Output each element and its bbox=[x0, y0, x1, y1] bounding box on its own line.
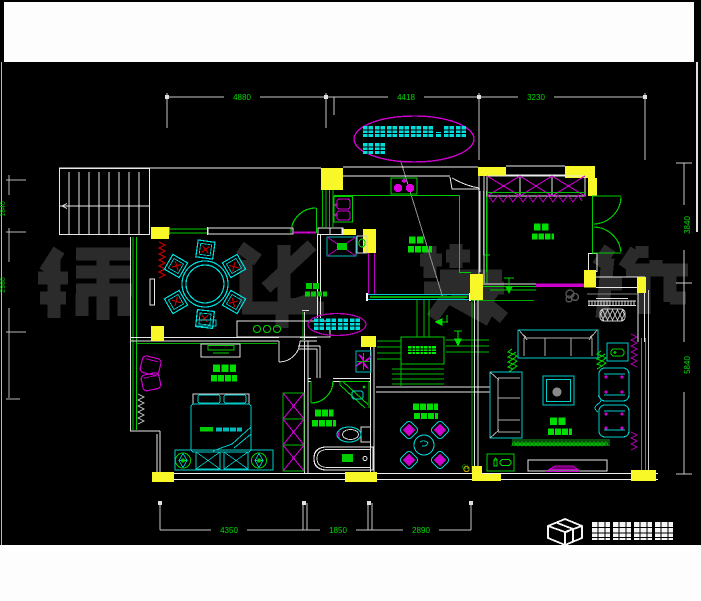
svg-text:CL: CL bbox=[462, 465, 470, 471]
svg-text:1850: 1850 bbox=[329, 526, 347, 535]
svg-text:3230: 3230 bbox=[527, 93, 545, 102]
svg-text:1840: 1840 bbox=[0, 201, 7, 217]
svg-text:4350: 4350 bbox=[220, 526, 238, 535]
svg-text:2890: 2890 bbox=[412, 526, 430, 535]
svg-text:4418: 4418 bbox=[397, 93, 415, 102]
svg-text:3840: 3840 bbox=[683, 216, 692, 234]
svg-text:4880: 4880 bbox=[233, 93, 251, 102]
svg-text:5840: 5840 bbox=[683, 356, 692, 374]
svg-text:2980: 2980 bbox=[0, 277, 7, 293]
